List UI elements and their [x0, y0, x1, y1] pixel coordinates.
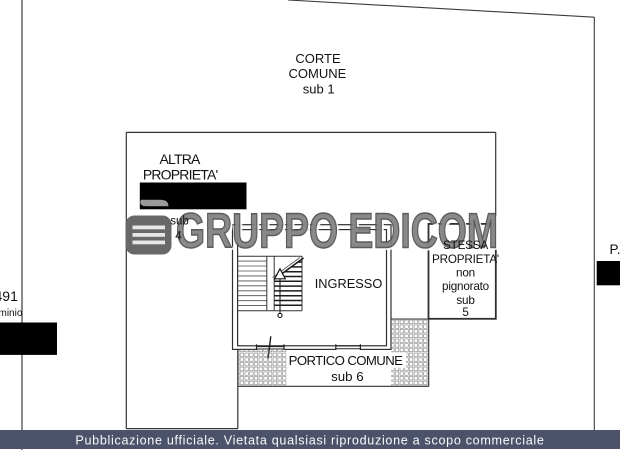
svg-text:5: 5	[462, 306, 469, 319]
svg-text:COMUNE: COMUNE	[289, 66, 347, 81]
svg-text:sub: sub	[170, 216, 189, 228]
svg-text:pignorato: pignorato	[442, 280, 490, 293]
svg-text:ALTRA: ALTRA	[159, 151, 201, 167]
svg-text:Pubblicazione ufficiale. Vieta: Pubblicazione ufficiale. Vietata qualsia…	[75, 433, 544, 447]
svg-text:PROPRIETA': PROPRIETA'	[143, 167, 218, 183]
svg-text:491: 491	[0, 288, 18, 304]
svg-text:PROPRIETA': PROPRIETA'	[432, 253, 499, 266]
svg-text:non: non	[456, 266, 475, 279]
svg-text:sub 6: sub 6	[331, 369, 364, 384]
svg-text:STESSA: STESSA	[443, 239, 488, 252]
svg-text:INGRESSO: INGRESSO	[315, 276, 383, 291]
svg-text:4: 4	[175, 231, 182, 243]
svg-text:sub 1: sub 1	[303, 81, 335, 96]
svg-text:P.: P.	[610, 242, 620, 257]
svg-text:CORTE: CORTE	[295, 51, 341, 66]
svg-text:PORTICO COMUNE: PORTICO COMUNE	[289, 353, 404, 368]
svg-text:minio: minio	[0, 308, 23, 319]
